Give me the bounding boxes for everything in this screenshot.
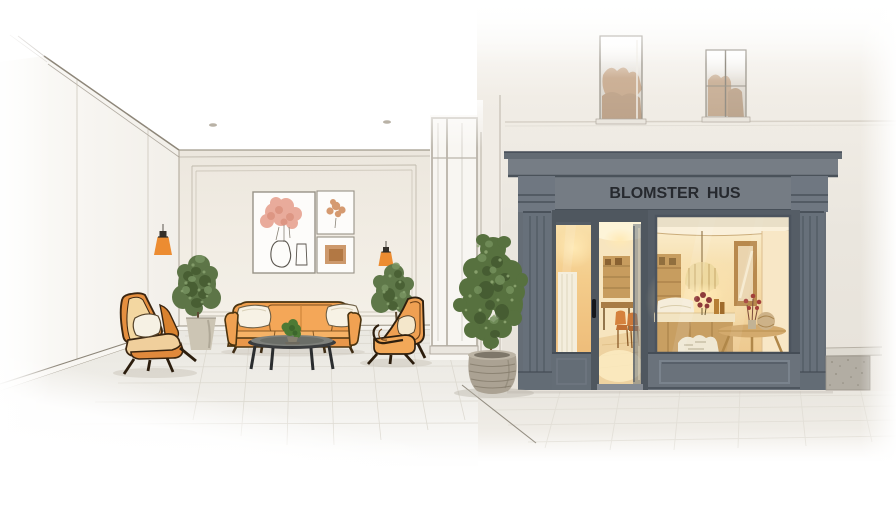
- svg-text:BLOMSTER HUS: BLOMSTER HUS: [609, 185, 741, 202]
